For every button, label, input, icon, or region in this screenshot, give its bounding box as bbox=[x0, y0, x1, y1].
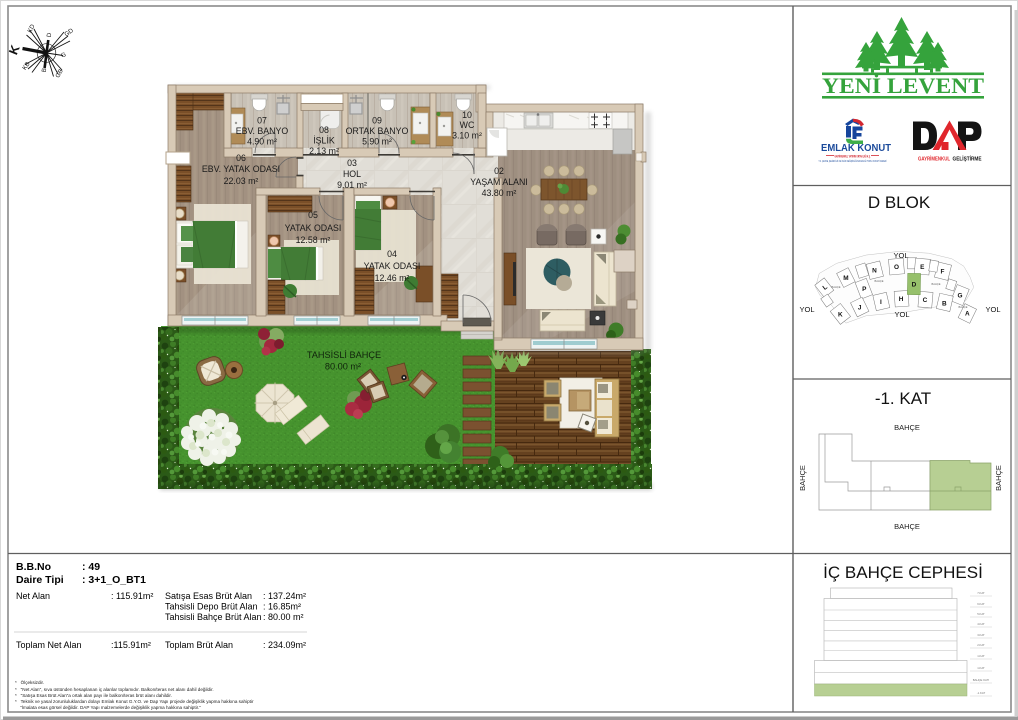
svg-text:6.KAT: 6.KAT bbox=[977, 602, 985, 606]
svg-text:E: E bbox=[920, 264, 925, 271]
svg-text:Daire Tipi: Daire Tipi bbox=[16, 574, 64, 586]
svg-text:7.KAT: 7.KAT bbox=[977, 591, 985, 595]
svg-text:5.90 m²: 5.90 m² bbox=[362, 137, 392, 147]
svg-text:07: 07 bbox=[257, 116, 267, 126]
svg-text:BAHÇE: BAHÇE bbox=[798, 465, 807, 491]
svg-text::115.91m²: :115.91m² bbox=[111, 640, 151, 650]
svg-text:G: G bbox=[957, 292, 962, 299]
svg-text:03: 03 bbox=[347, 158, 357, 168]
svg-text:BAHÇE: BAHÇE bbox=[875, 279, 884, 283]
svg-text:02: 02 bbox=[494, 166, 504, 176]
svg-text:H: H bbox=[899, 296, 904, 303]
svg-text:06: 06 bbox=[236, 153, 246, 163]
svg-text:GELİŞTİRME: GELİŞTİRME bbox=[953, 156, 982, 163]
svg-text:: 80.00 m²: : 80.00 m² bbox=[263, 612, 304, 622]
svg-text:9.01 m²: 9.01 m² bbox=[337, 180, 367, 190]
svg-text:D BLOK: D BLOK bbox=[868, 193, 931, 212]
svg-text:YATAK ODASI: YATAK ODASI bbox=[285, 223, 342, 233]
svg-text:04: 04 bbox=[387, 249, 397, 259]
svg-text:* "Net Alan", sıva üstünden: * "Net Alan", sıva üstünden hesaplanan i… bbox=[15, 687, 214, 692]
svg-text:T.C. ÇEVRE, ŞEHİRCİLİK VE İKLİ: T.C. ÇEVRE, ŞEHİRCİLİK VE İKLİM DEĞİŞİKL… bbox=[819, 158, 887, 163]
svg-text:BAHÇE: BAHÇE bbox=[932, 282, 941, 286]
svg-text:80.00 m²: 80.00 m² bbox=[325, 362, 361, 372]
svg-text:O: O bbox=[894, 264, 899, 271]
svg-text:05: 05 bbox=[308, 210, 318, 220]
svg-text:"İmalata esas görsel değildir.: "İmalata esas görsel değildir. DAP Yapı … bbox=[15, 704, 201, 710]
svg-text:BAHÇE KATI: BAHÇE KATI bbox=[973, 678, 990, 682]
svg-text:YOL: YOL bbox=[799, 305, 814, 314]
svg-text:ORTAK BANYO: ORTAK BANYO bbox=[346, 126, 409, 136]
svg-text:Toplam Brüt Alan: Toplam Brüt Alan bbox=[165, 640, 233, 650]
svg-text:Net Alan: Net Alan bbox=[16, 591, 50, 601]
svg-text:I: I bbox=[880, 299, 882, 306]
svg-text:-1. KAT: -1. KAT bbox=[875, 389, 931, 408]
svg-text:BAHÇE: BAHÇE bbox=[959, 305, 968, 309]
svg-text:YOL: YOL bbox=[894, 310, 909, 319]
svg-text:1.KAT: 1.KAT bbox=[977, 654, 985, 658]
svg-text:GAYRİMENKUL YATIRIM ORTAKLIĞI: GAYRİMENKUL YATIRIM ORTAKLIĞI A.Ş. bbox=[835, 154, 871, 159]
svg-text:4.KAT: 4.KAT bbox=[977, 622, 985, 626]
svg-text:YATAK ODASI: YATAK ODASI bbox=[364, 261, 421, 271]
svg-text:WC: WC bbox=[460, 120, 475, 130]
svg-text:F: F bbox=[941, 268, 945, 275]
svg-text:YAŞAM ALANI: YAŞAM ALANI bbox=[470, 177, 528, 187]
svg-text:2.KAT: 2.KAT bbox=[977, 643, 985, 647]
svg-text:: 49: : 49 bbox=[82, 561, 100, 573]
svg-text:3.10 m²: 3.10 m² bbox=[452, 131, 482, 141]
svg-text:J: J bbox=[858, 304, 862, 311]
svg-text:İŞLİK: İŞLİK bbox=[313, 136, 335, 146]
svg-text:1.KAT: 1.KAT bbox=[977, 666, 985, 670]
svg-text:YOL: YOL bbox=[893, 251, 908, 260]
svg-text:EMLAK KONUT: EMLAK KONUT bbox=[821, 142, 892, 154]
svg-text:Toplam Net Alan: Toplam Net Alan bbox=[16, 640, 82, 650]
svg-text:-1.KAT: -1.KAT bbox=[977, 691, 986, 695]
svg-text:: 234.09m²: : 234.09m² bbox=[263, 640, 306, 650]
svg-text:EBV. YATAK ODASI: EBV. YATAK ODASI bbox=[202, 164, 280, 174]
svg-text:5.KAT: 5.KAT bbox=[977, 612, 985, 616]
svg-text:22.03 m²: 22.03 m² bbox=[224, 176, 259, 186]
svg-text:4.90 m²: 4.90 m² bbox=[247, 137, 277, 147]
svg-text:BAHÇE: BAHÇE bbox=[832, 285, 841, 289]
svg-text:HOL: HOL bbox=[343, 169, 361, 179]
svg-text:Tahsisli Bahçe Brüt Alan: Tahsisli Bahçe Brüt Alan bbox=[165, 612, 262, 622]
svg-text:BAHÇE: BAHÇE bbox=[894, 423, 920, 432]
svg-text:09: 09 bbox=[372, 116, 382, 126]
svg-text:: 3+1_O_BT1: : 3+1_O_BT1 bbox=[82, 574, 146, 586]
svg-text:A: A bbox=[965, 311, 970, 318]
svg-text:C: C bbox=[923, 297, 928, 304]
svg-text:BAHÇE: BAHÇE bbox=[994, 465, 1003, 491]
svg-text:12.58 m²: 12.58 m² bbox=[296, 235, 331, 245]
svg-text:P: P bbox=[862, 286, 867, 293]
svg-text:YENİ LEVENT: YENİ LEVENT bbox=[822, 73, 984, 98]
svg-text:* Ölçeksizdir.: * Ölçeksizdir. bbox=[15, 679, 44, 685]
svg-text:GAYRİMENKUL: GAYRİMENKUL bbox=[918, 156, 951, 163]
svg-text:YOL: YOL bbox=[985, 305, 1000, 314]
svg-text:B: B bbox=[942, 301, 947, 308]
svg-text:: 137.24m²: : 137.24m² bbox=[263, 591, 306, 601]
svg-text:* Teknik ve yasal zorunluluk: * Teknik ve yasal zorunluluklardan dolay… bbox=[15, 699, 254, 704]
svg-text:Tahsisli Depo Brüt Alan: Tahsisli Depo Brüt Alan bbox=[165, 602, 258, 612]
svg-text:: 115.91m²: : 115.91m² bbox=[111, 591, 153, 601]
svg-text:D: D bbox=[912, 281, 917, 288]
svg-text:İÇ BAHÇE CEPHESİ: İÇ BAHÇE CEPHESİ bbox=[823, 563, 983, 582]
svg-text:3.KAT: 3.KAT bbox=[977, 633, 985, 637]
svg-text:2.13 m²: 2.13 m² bbox=[309, 146, 339, 156]
svg-text:K: K bbox=[838, 312, 843, 319]
svg-text:M: M bbox=[843, 275, 848, 282]
svg-text:Satışa Esas Brüt Alan: Satışa Esas Brüt Alan bbox=[165, 591, 252, 601]
svg-text:* "Satışa Esas Brüt Alan"a o: * "Satışa Esas Brüt Alan"a ortak alan pa… bbox=[15, 693, 172, 698]
svg-text:TAHSİSLİ BAHÇE: TAHSİSLİ BAHÇE bbox=[307, 350, 381, 360]
svg-text:EBV. BANYO: EBV. BANYO bbox=[236, 126, 289, 136]
svg-text:08: 08 bbox=[319, 125, 329, 135]
svg-text:B.B.No: B.B.No bbox=[16, 561, 51, 573]
svg-text:43.80 m²: 43.80 m² bbox=[482, 188, 517, 198]
svg-text:: 16.85m²: : 16.85m² bbox=[263, 602, 301, 612]
svg-text:12.46 m²: 12.46 m² bbox=[375, 273, 410, 283]
svg-text:BAHÇE: BAHÇE bbox=[894, 522, 920, 531]
svg-text:10: 10 bbox=[462, 110, 472, 120]
svg-text:N: N bbox=[872, 268, 877, 275]
